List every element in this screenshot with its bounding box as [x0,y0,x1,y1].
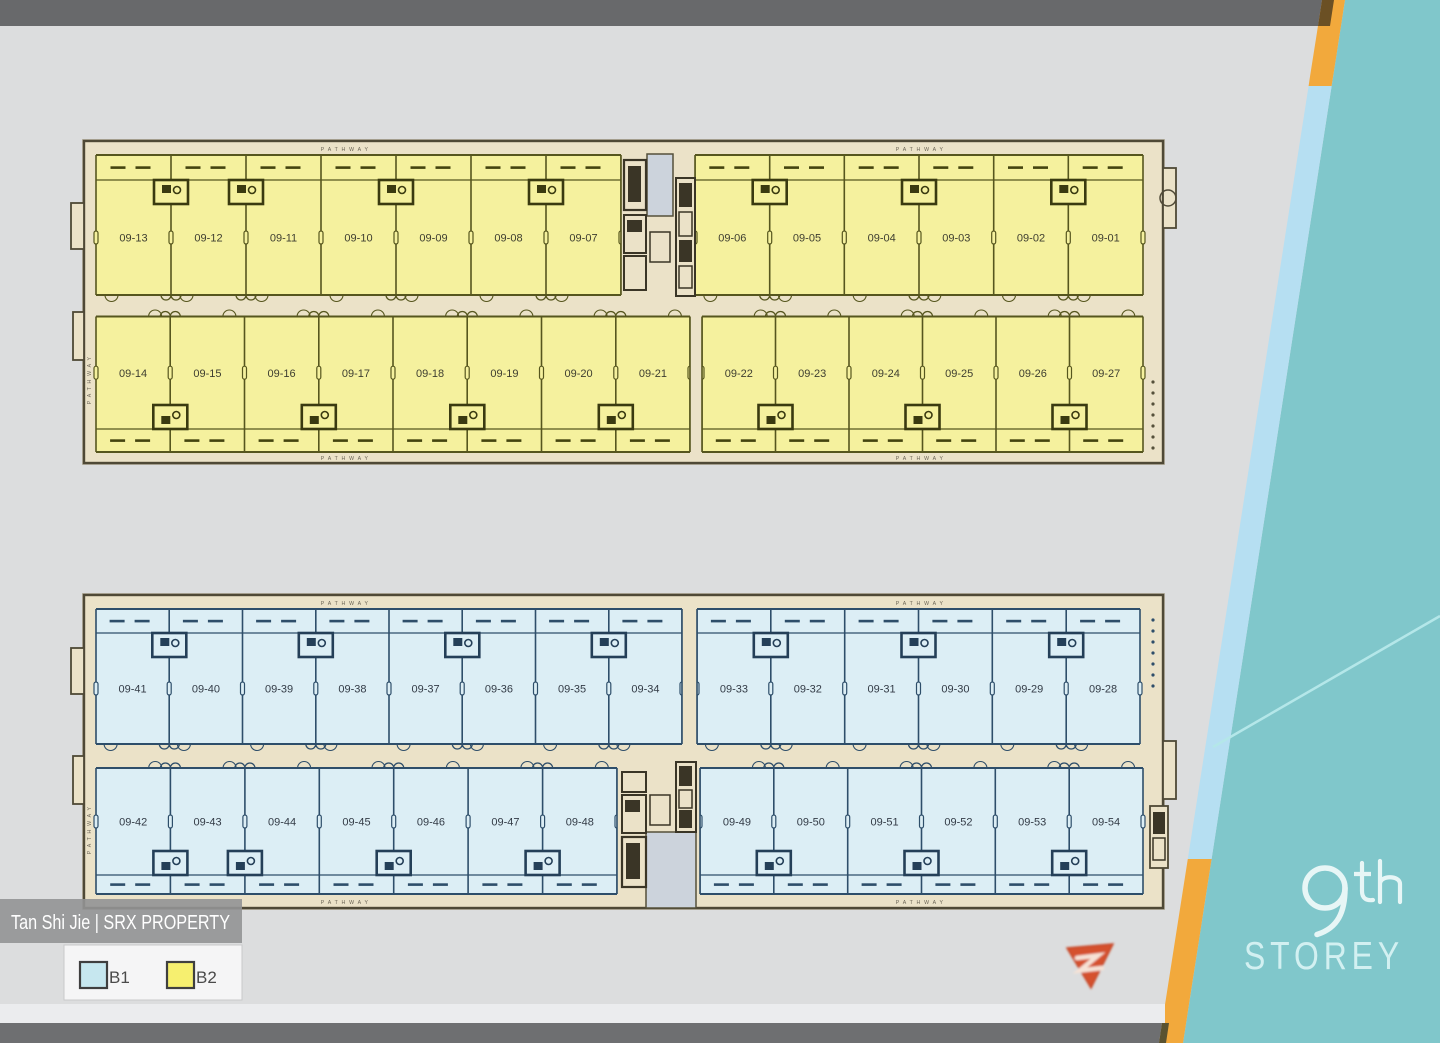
svg-text:09-53: 09-53 [1018,817,1046,829]
svg-text:09-20: 09-20 [565,368,593,380]
svg-text:P A T H W A Y: P A T H W A Y [321,147,369,153]
svg-text:09-12: 09-12 [194,233,222,245]
svg-text:P A T H W A Y: P A T H W A Y [321,456,369,462]
svg-text:09-13: 09-13 [119,233,147,245]
svg-text:09-44: 09-44 [268,817,296,829]
svg-text:09-48: 09-48 [566,817,594,829]
svg-text:P A T H W A Y: P A T H W A Y [321,601,369,607]
svg-text:09-06: 09-06 [718,233,746,245]
svg-text:09-02: 09-02 [1017,233,1045,245]
svg-text:09-42: 09-42 [119,817,147,829]
svg-text:09-54: 09-54 [1092,817,1120,829]
svg-text:09-24: 09-24 [872,368,900,380]
svg-text:B2: B2 [196,968,217,987]
svg-text:09-25: 09-25 [945,368,973,380]
svg-text:09-04: 09-04 [868,233,896,245]
svg-text:09-23: 09-23 [798,368,826,380]
svg-text:09-26: 09-26 [1019,368,1047,380]
svg-text:STOREY: STOREY [1244,935,1404,978]
svg-text:09-34: 09-34 [631,684,659,696]
svg-text:09-27: 09-27 [1092,368,1120,380]
svg-text:09-14: 09-14 [119,368,147,380]
svg-text:09-49: 09-49 [723,817,751,829]
svg-text:09-43: 09-43 [194,817,222,829]
svg-text:B1: B1 [109,968,130,987]
svg-text:P A T H W A Y: P A T H W A Y [896,147,944,153]
svg-text:09-40: 09-40 [192,684,220,696]
svg-text:09-01: 09-01 [1092,233,1120,245]
svg-text:09-39: 09-39 [265,684,293,696]
svg-text:P A T H W A Y: P A T H W A Y [896,601,944,607]
svg-text:09-52: 09-52 [944,817,972,829]
svg-text:Tan Shi Jie | SRX PROPERTY: Tan Shi Jie | SRX PROPERTY [11,912,230,934]
svg-text:09-07: 09-07 [569,233,597,245]
svg-text:09-16: 09-16 [268,368,296,380]
svg-text:09-33: 09-33 [720,684,748,696]
svg-text:09-50: 09-50 [797,817,825,829]
svg-text:09-10: 09-10 [344,233,372,245]
svg-text:09-30: 09-30 [941,684,969,696]
svg-text:09-31: 09-31 [868,684,896,696]
svg-text:09-29: 09-29 [1015,684,1043,696]
svg-text:P A T H W A Y: P A T H W A Y [321,900,369,906]
svg-text:P A T H W A Y: P A T H W A Y [896,900,944,906]
svg-text:09-35: 09-35 [558,684,586,696]
svg-text:09-41: 09-41 [119,684,147,696]
svg-text:P A T H W A Y: P A T H W A Y [87,806,93,854]
svg-text:09-51: 09-51 [871,817,899,829]
svg-text:09-19: 09-19 [490,368,518,380]
svg-text:09-22: 09-22 [725,368,753,380]
svg-text:09-21: 09-21 [639,368,667,380]
svg-text:09-03: 09-03 [942,233,970,245]
svg-text:09-32: 09-32 [794,684,822,696]
svg-text:09-45: 09-45 [342,817,370,829]
svg-text:09-47: 09-47 [491,817,519,829]
svg-text:09-05: 09-05 [793,233,821,245]
svg-text:09-15: 09-15 [193,368,221,380]
svg-text:09-09: 09-09 [419,233,447,245]
svg-text:09-37: 09-37 [412,684,440,696]
svg-text:P A T H W A Y: P A T H W A Y [87,356,93,404]
svg-text:P A T H W A Y: P A T H W A Y [896,456,944,462]
svg-text:09-46: 09-46 [417,817,445,829]
svg-text:09-18: 09-18 [416,368,444,380]
svg-text:09-38: 09-38 [338,684,366,696]
svg-text:09-28: 09-28 [1089,684,1117,696]
svg-text:09-36: 09-36 [485,684,513,696]
svg-text:09-08: 09-08 [494,233,522,245]
svg-text:09-17: 09-17 [342,368,370,380]
svg-text:09-11: 09-11 [270,233,297,245]
